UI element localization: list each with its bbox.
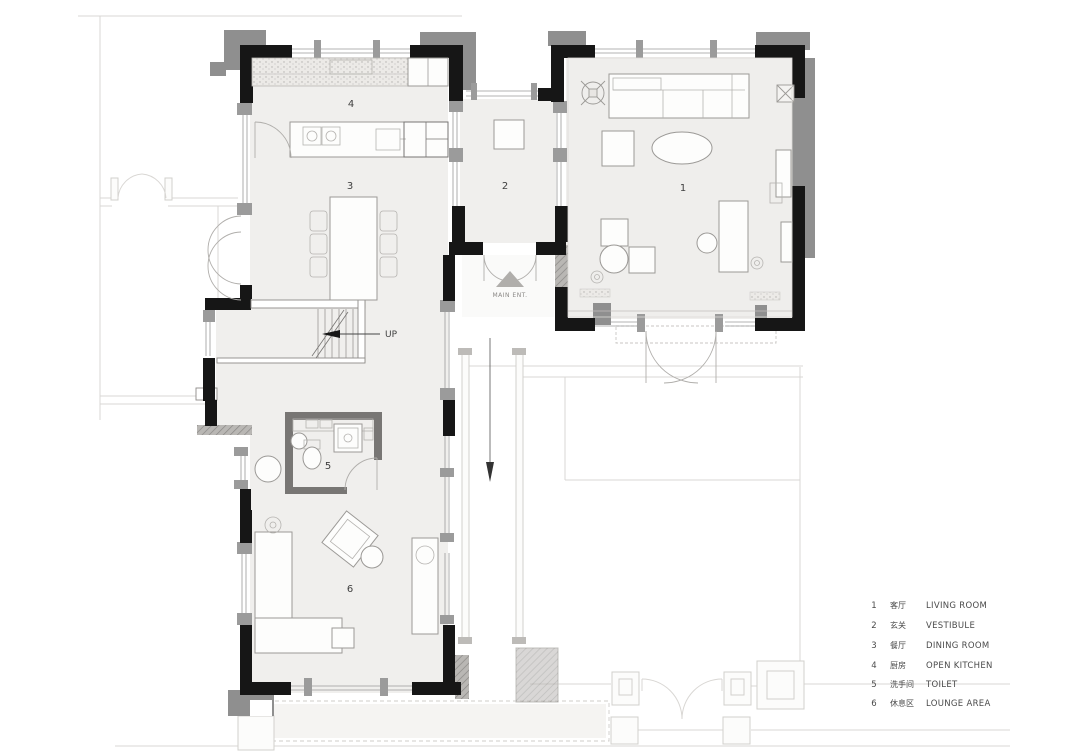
floor-stair-bump — [216, 308, 252, 426]
legend-row: 6 休息区 LOUNGE AREA — [871, 698, 990, 709]
floor-plan-page: 1 2 3 4 5 6 UP MAIN ENT. 1 客厅 LIVING ROO… — [0, 0, 1080, 752]
console-desk — [719, 201, 748, 272]
room-number-toilet: 5 — [325, 461, 331, 472]
legend-row: 4 厨房 OPEN KITCHEN — [871, 660, 992, 671]
daybed-cushion — [332, 628, 354, 648]
svg-text:2: 2 — [871, 621, 876, 631]
legend-row: 1 客厅 LIVING ROOM — [871, 600, 987, 611]
daybed-long — [255, 532, 292, 620]
legend-row: 3 餐厅 DINING ROOM — [871, 641, 989, 651]
tv-cabinet — [776, 150, 791, 197]
tall-cabinet — [412, 538, 438, 634]
armchair — [601, 219, 628, 246]
daybed-short — [255, 618, 342, 653]
coffee-table-oval — [652, 132, 712, 164]
svg-text:TOILET: TOILET — [925, 680, 958, 690]
svg-text:4: 4 — [871, 661, 876, 671]
floor-plan-drawing: 1 2 3 4 5 6 UP MAIN ENT. 1 客厅 LIVING ROO… — [0, 0, 1080, 752]
entry-mat — [494, 120, 524, 149]
dining-table — [330, 197, 377, 300]
svg-text:3: 3 — [871, 641, 876, 651]
svg-text:VESTIBULE: VESTIBULE — [926, 621, 975, 631]
room-number-dining: 3 — [347, 181, 353, 192]
round-table — [600, 245, 628, 273]
round-side-table — [255, 456, 281, 482]
speaker-icon — [777, 85, 794, 102]
room-number-lounge: 6 — [347, 584, 353, 595]
ottoman — [361, 546, 383, 568]
svg-text:客厅: 客厅 — [890, 600, 906, 610]
floor-vent — [580, 289, 610, 297]
room-number-vestibule: 2 — [502, 181, 508, 192]
furniture-hall — [255, 456, 281, 482]
svg-text:LIVING ROOM: LIVING ROOM — [926, 601, 987, 611]
walkway-arrow — [486, 338, 494, 482]
terrace-bottom — [238, 701, 609, 750]
legend-row: 2 玄关 VESTIBULE — [871, 620, 975, 631]
main-entrance-label: MAIN ENT. — [492, 292, 527, 299]
svg-text:玄关: 玄关 — [890, 620, 906, 630]
side-table — [602, 131, 634, 166]
floor-vent — [750, 292, 780, 300]
svg-text:洗手间: 洗手间 — [890, 679, 914, 689]
svg-text:餐厅: 餐厅 — [890, 641, 906, 650]
sofa — [609, 74, 749, 118]
wash-basin — [291, 433, 307, 449]
toilet-bowl — [303, 447, 321, 469]
svg-text:6: 6 — [871, 699, 876, 709]
armchair — [629, 247, 655, 273]
svg-text:5: 5 — [871, 680, 876, 690]
svg-text:LOUNGE AREA: LOUNGE AREA — [926, 699, 991, 709]
room-number-kitchen: 4 — [348, 99, 354, 110]
furniture-vestibule — [494, 120, 524, 149]
wall-shelf — [781, 222, 792, 262]
up-label: UP — [385, 330, 398, 340]
svg-text:1: 1 — [871, 601, 876, 611]
svg-text:休息区: 休息区 — [890, 698, 914, 708]
svg-text:DINING ROOM: DINING ROOM — [926, 641, 990, 651]
svg-text:OPEN KITCHEN: OPEN KITCHEN — [926, 661, 993, 671]
patio-pergola — [458, 348, 803, 662]
legend: 1 客厅 LIVING ROOM 2 玄关 VESTIBULE 3 餐厅 DIN… — [871, 600, 992, 709]
context-door-top-left — [111, 174, 172, 200]
svg-text:厨房: 厨房 — [890, 660, 906, 670]
stool — [697, 233, 717, 253]
room-number-living: 1 — [680, 183, 686, 194]
